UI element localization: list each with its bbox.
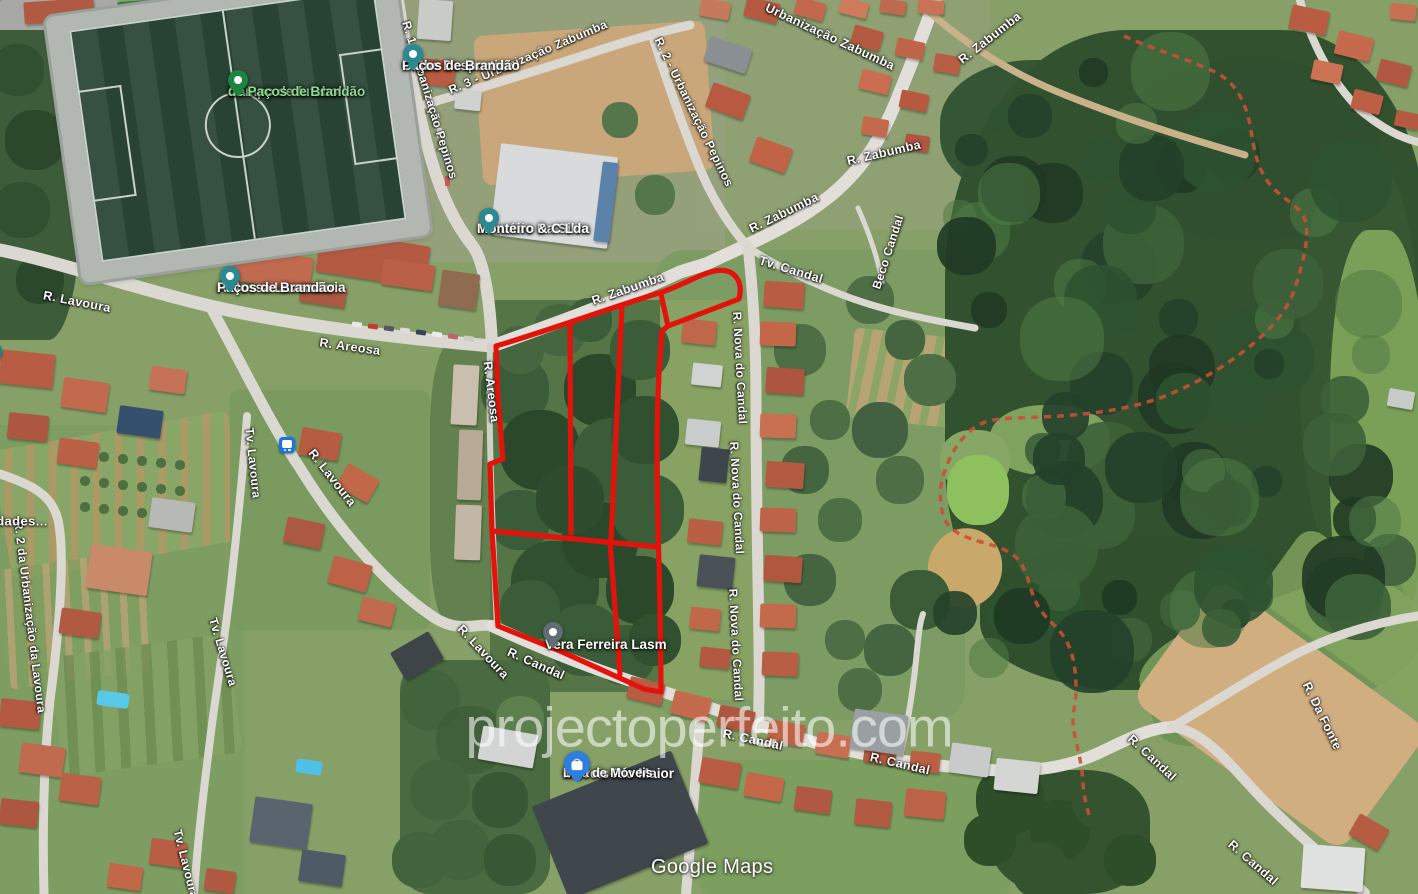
satellite-map[interactable]: R. 1 - Urbanização Pepinos R. 3 - Urbani… — [0, 0, 1418, 894]
google-maps-attribution[interactable]: Google Maps — [651, 856, 773, 879]
watermark: projectoperfeito.com — [465, 695, 952, 760]
